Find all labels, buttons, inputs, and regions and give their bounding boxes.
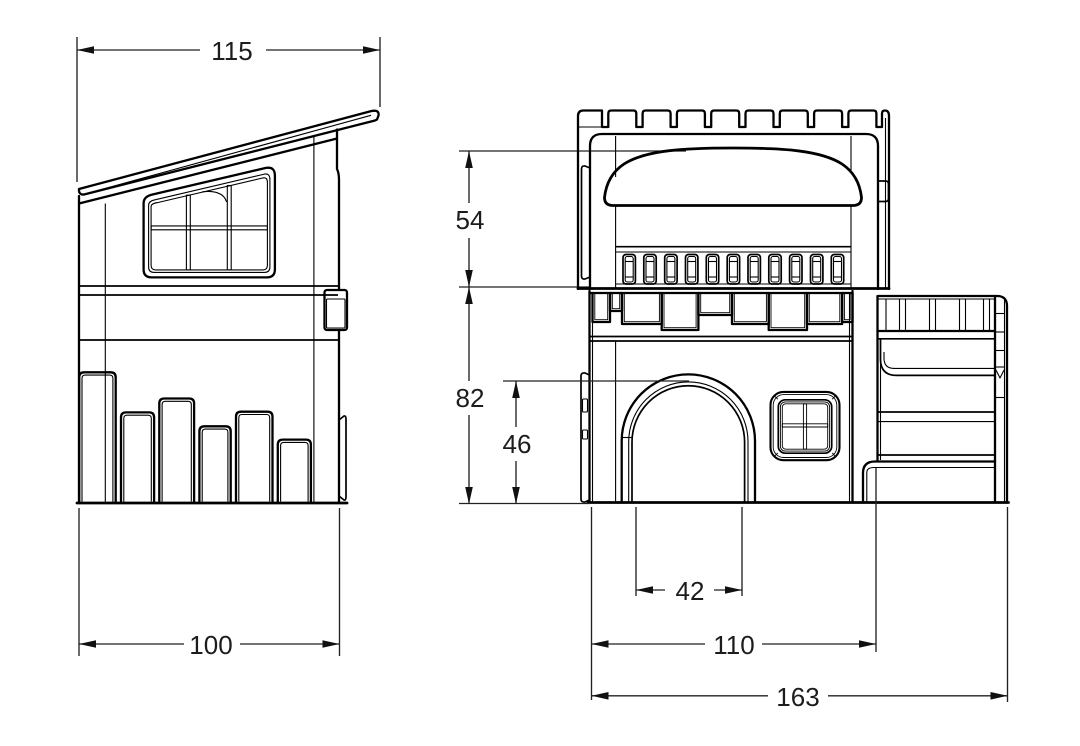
svg-text:46: 46 [503,429,532,459]
svg-text:110: 110 [713,630,754,660]
svg-text:54: 54 [456,205,485,235]
svg-text:100: 100 [189,630,232,660]
svg-text:82: 82 [456,383,485,413]
svg-text:42: 42 [676,576,705,606]
svg-text:163: 163 [776,682,819,712]
svg-text:115: 115 [211,36,252,66]
